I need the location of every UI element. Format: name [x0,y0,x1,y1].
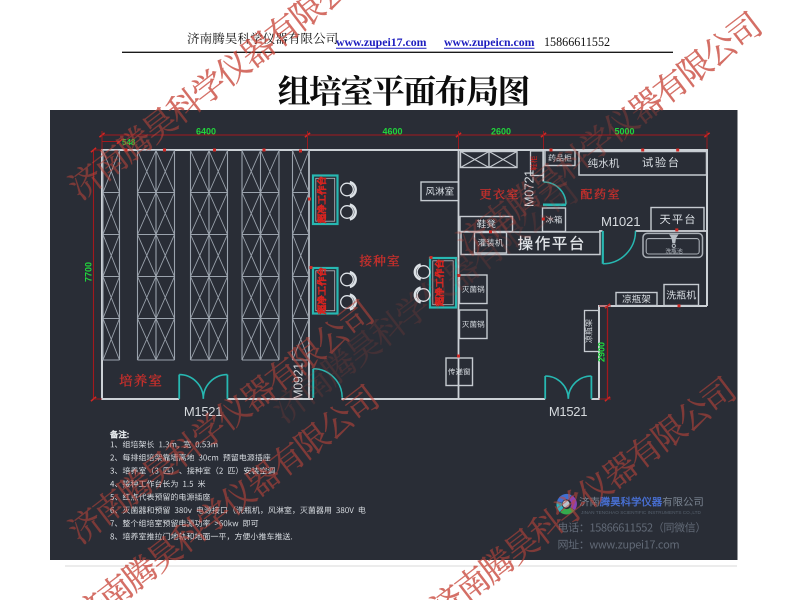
svg-text:M1521: M1521 [549,404,587,419]
svg-text:7700: 7700 [84,262,94,282]
svg-text:www.zupeicn.com: www.zupeicn.com [444,35,535,49]
svg-text:6400: 6400 [196,127,216,137]
svg-text:4600: 4600 [382,127,402,137]
svg-text:www.zupei17.com: www.zupei17.com [336,35,427,49]
svg-text:15866611552: 15866611552 [544,35,610,49]
svg-text:JINAN TENGHAO SCIENTIFIC INSTR: JINAN TENGHAO SCIENTIFIC INSTRUMENTS CO.… [581,510,702,515]
svg-text:2900: 2900 [597,342,607,362]
svg-text:M1021: M1021 [601,214,640,229]
svg-text:M1521: M1521 [184,404,222,419]
svg-text:2600: 2600 [491,127,511,137]
